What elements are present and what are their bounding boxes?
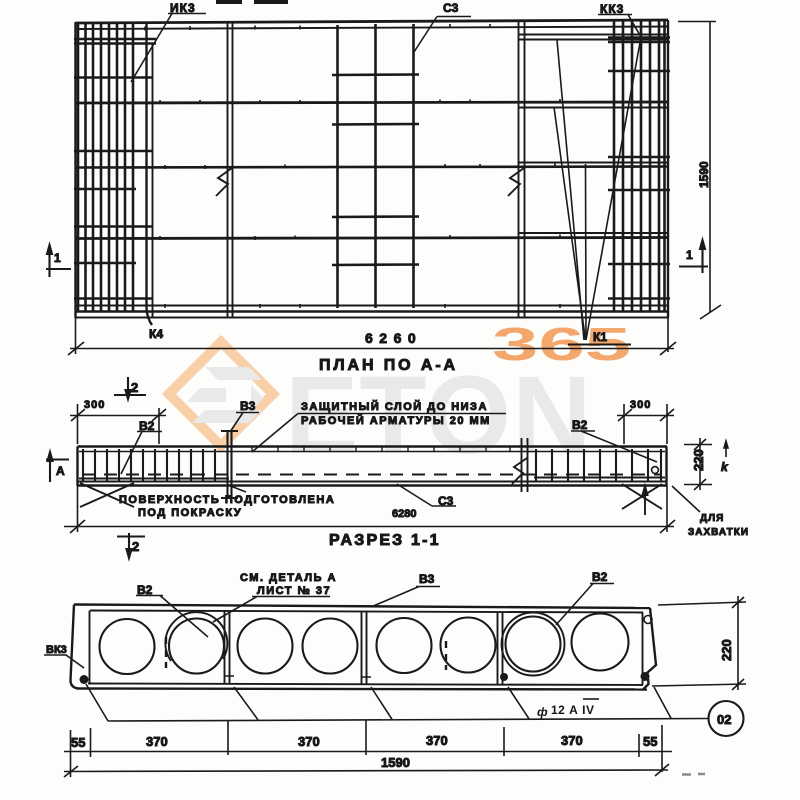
svg-text:ПОВЕРХНОСТЬ ПОДГОТОВЛЕНА: ПОВЕРХНОСТЬ ПОДГОТОВЛЕНА (119, 494, 335, 506)
svg-text:370: 370 (146, 734, 168, 749)
svg-text:В2: В2 (572, 418, 588, 432)
svg-text:370: 370 (426, 733, 448, 748)
svg-text:ф: ф (537, 705, 549, 719)
svg-text:1590: 1590 (697, 161, 711, 188)
svg-text:С3: С3 (443, 1, 459, 15)
svg-text:220: 220 (691, 449, 706, 471)
svg-text:02: 02 (717, 712, 731, 727)
svg-text:ЛИСТ № 37: ЛИСТ № 37 (257, 585, 331, 597)
svg-text:В2: В2 (592, 570, 608, 584)
svg-text:2: 2 (132, 539, 139, 554)
svg-text:370: 370 (561, 733, 583, 748)
svg-text:РАБОЧЕЙ АРМАТУРЫ 20 ММ: РАБОЧЕЙ АРМАТУРЫ 20 ММ (301, 414, 491, 427)
svg-text:ЗАХВАТКИ: ЗАХВАТКИ (688, 527, 749, 538)
svg-text:ПОД ПОКРАСКУ: ПОД ПОКРАСКУ (138, 507, 242, 519)
svg-text:В3: В3 (419, 572, 435, 586)
svg-text:12 А IV: 12 А IV (551, 703, 595, 717)
svg-text:1: 1 (54, 251, 61, 265)
svg-text:ЗАЩИТНЫЙ СЛОЙ ДО НИЗА: ЗАЩИТНЫЙ СЛОЙ ДО НИЗА (301, 400, 488, 413)
svg-text:6280: 6280 (392, 508, 416, 520)
svg-text:55: 55 (71, 735, 85, 750)
svg-text:РАЗРЕЗ 1-1: РАЗРЕЗ 1-1 (329, 532, 441, 549)
svg-text:370: 370 (298, 734, 320, 749)
svg-text:К1: К1 (593, 330, 607, 344)
svg-text:СМ. ДЕТАЛЬ А: СМ. ДЕТАЛЬ А (240, 572, 337, 584)
svg-text:55: 55 (643, 734, 657, 749)
svg-text:ПЛАН ПО А-А: ПЛАН ПО А-А (319, 357, 458, 374)
svg-text:К4: К4 (149, 327, 163, 341)
svg-text:300: 300 (84, 399, 105, 411)
svg-text:300: 300 (630, 399, 651, 411)
svg-text:1590: 1590 (381, 755, 410, 770)
svg-text:6260: 6260 (365, 330, 422, 346)
svg-text:1: 1 (686, 248, 693, 262)
svg-text:А: А (56, 464, 65, 478)
svg-text:ДЛЯ: ДЛЯ (700, 513, 724, 524)
svg-text:220: 220 (719, 639, 734, 661)
svg-text:2: 2 (131, 380, 138, 395)
svg-text:В3: В3 (240, 399, 256, 413)
